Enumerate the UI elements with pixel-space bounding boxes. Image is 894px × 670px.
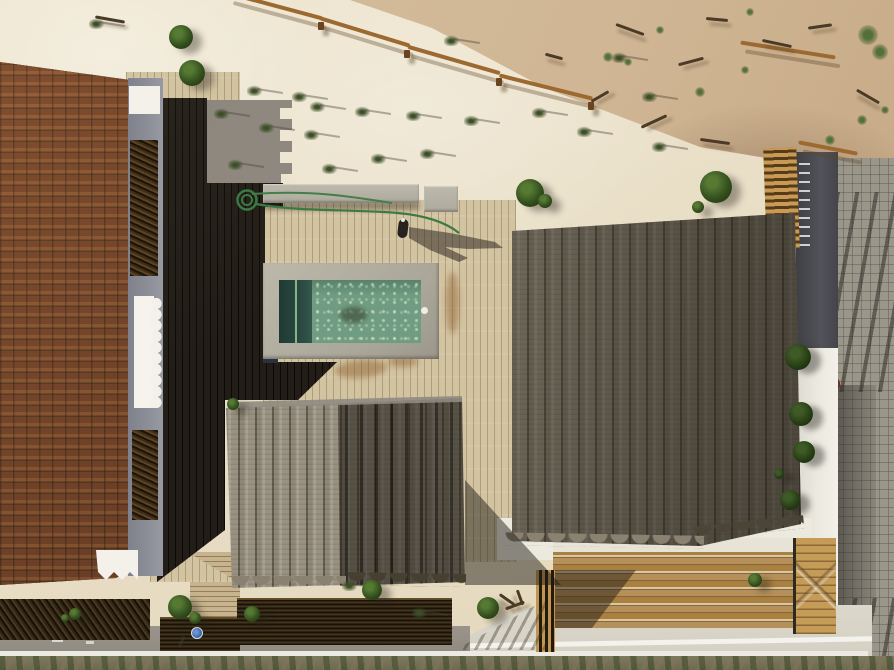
bush bbox=[700, 171, 732, 203]
grass-tuft bbox=[310, 101, 326, 112]
grass-tuft bbox=[304, 129, 320, 140]
dune-weed bbox=[746, 8, 754, 16]
grass-tuft bbox=[371, 153, 387, 164]
dune-weed bbox=[656, 26, 664, 34]
dune-weed bbox=[858, 25, 878, 45]
driftwood-stick bbox=[545, 53, 563, 61]
bush bbox=[227, 398, 239, 410]
dune-weed bbox=[825, 135, 835, 145]
grass-tuft bbox=[532, 107, 548, 118]
bush bbox=[748, 573, 762, 587]
grass-tuft bbox=[259, 122, 275, 133]
dune-weed bbox=[881, 106, 889, 114]
driftwood-stick bbox=[706, 17, 728, 22]
bush bbox=[477, 597, 499, 619]
grass-tuft bbox=[652, 141, 668, 152]
wall-shrub bbox=[780, 490, 800, 510]
dune-weed bbox=[857, 115, 867, 125]
dune-weed bbox=[872, 44, 888, 60]
driftwood-stick bbox=[700, 138, 730, 145]
driftwood-stick bbox=[615, 23, 644, 36]
grass-tuft bbox=[292, 91, 308, 102]
dune-weed bbox=[624, 58, 632, 66]
vegetation-layer bbox=[0, 0, 894, 670]
grass-tuft bbox=[577, 126, 593, 137]
grass-tuft bbox=[406, 110, 422, 121]
grass-tuft bbox=[642, 91, 658, 102]
driftwood-stick bbox=[762, 39, 792, 48]
wall-shrub bbox=[785, 344, 811, 370]
grass-tuft bbox=[412, 607, 428, 618]
bush bbox=[189, 612, 201, 624]
dune-weed bbox=[741, 66, 749, 74]
grass-tuft bbox=[322, 163, 338, 174]
driftwood-stick bbox=[856, 89, 880, 105]
bush bbox=[169, 25, 193, 49]
wall-shrub bbox=[774, 469, 784, 479]
grass-tuft bbox=[247, 85, 263, 96]
driftwood-stick bbox=[641, 114, 668, 129]
grass-tuft bbox=[355, 106, 371, 117]
bush bbox=[692, 201, 704, 213]
grass-tuft bbox=[420, 148, 436, 159]
grass-tuft bbox=[228, 159, 244, 170]
driftwood-stick bbox=[591, 90, 610, 103]
bush bbox=[69, 608, 81, 620]
bush bbox=[61, 614, 69, 622]
grass-tuft bbox=[444, 35, 460, 46]
dune-weed bbox=[695, 87, 705, 97]
wall-shrub bbox=[793, 441, 815, 463]
aerial-photo-scene bbox=[0, 0, 894, 670]
grass-tuft bbox=[342, 580, 358, 591]
driftwood-stick bbox=[808, 23, 832, 29]
grass-tuft bbox=[214, 108, 230, 119]
driftwood-stick bbox=[678, 57, 704, 67]
bush bbox=[244, 606, 260, 622]
bush bbox=[538, 194, 552, 208]
bush bbox=[179, 60, 205, 86]
grass-tuft bbox=[464, 115, 480, 126]
bush bbox=[362, 580, 382, 600]
dune-weed bbox=[603, 52, 613, 62]
wall-shrub bbox=[789, 402, 813, 426]
